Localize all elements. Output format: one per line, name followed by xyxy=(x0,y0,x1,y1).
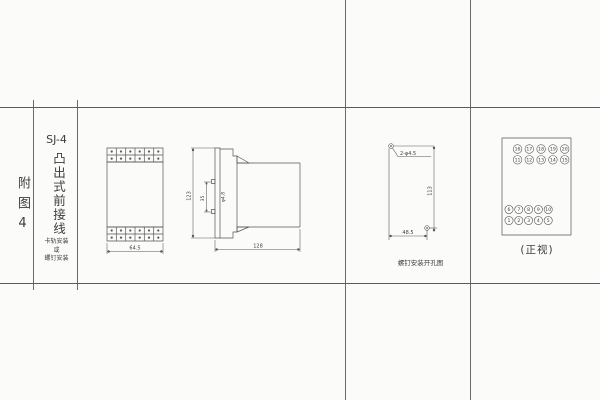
terminal-number: 7 xyxy=(517,207,520,213)
figure-label: 附图4 xyxy=(13,176,32,238)
terminal-number: 10 xyxy=(545,207,551,213)
mounting-subtitle-line: 螺钉安装 xyxy=(35,255,78,264)
terminal-number: 9 xyxy=(537,207,540,213)
terminal-number: 3 xyxy=(527,218,530,224)
front-view-width-dim-label: 64.5 xyxy=(129,246,140,252)
drill-plan-holes-label: 2-φ4.5 xyxy=(400,151,416,157)
scanned-manual-page: 64.5 123 xyxy=(0,0,600,400)
terminal-number: 5 xyxy=(547,218,550,224)
side-view-depth-dim-label: 128 xyxy=(253,244,263,250)
side-view-inner-dim-b-label: φ4.8 xyxy=(221,192,227,202)
drill-plan-vertical-dim-label: 113 xyxy=(428,186,434,196)
front-view-drawing: 64.5 xyxy=(107,148,163,254)
terminal-number: 6 xyxy=(508,207,511,213)
terminal-number: 19 xyxy=(550,147,556,153)
terminal-number: 1 xyxy=(508,218,511,224)
vertical-title: 凸出式前接线 xyxy=(49,152,68,236)
terminal-numbers-top: 16 17 18 19 20 11 12 13 14 15 xyxy=(515,147,568,164)
drill-plan-drawing: 2-φ4.5 113 48.5 xyxy=(389,144,437,240)
terminal-number: 20 xyxy=(562,147,568,153)
mounting-subtitle-line: 或 xyxy=(35,247,78,256)
terminal-number: 11 xyxy=(515,158,521,164)
terminal-number: 4 xyxy=(537,218,540,224)
terminal-layout-drawing: 16 17 18 19 20 11 12 13 14 15 6 7 8 9 10 xyxy=(502,138,571,235)
terminal-number: 12 xyxy=(526,158,532,164)
terminal-number: 15 xyxy=(562,158,568,164)
terminal-number: 18 xyxy=(538,147,544,153)
drill-plan-caption: 螺钉安装开孔图 xyxy=(383,257,458,267)
side-view-height-dim-label: 123 xyxy=(187,191,193,201)
terminal-number: 14 xyxy=(550,158,556,164)
terminal-number: 16 xyxy=(515,147,521,153)
side-view-height-dimension xyxy=(191,148,215,238)
terminal-number: 2 xyxy=(517,218,520,224)
mounting-subtitle-line: 卡轨安装 xyxy=(35,238,78,247)
drill-plan-horizontal-dim-label: 48.5 xyxy=(402,230,413,236)
terminal-number: 8 xyxy=(527,207,530,213)
terminal-view-caption: (正视) xyxy=(506,242,568,257)
side-view-inner-dim-a-label: 35 xyxy=(200,196,206,202)
technical-drawing: 64.5 123 xyxy=(0,0,600,400)
terminal-number: 17 xyxy=(526,147,532,153)
mounting-subtitle: 卡轨安装 或 螺钉安装 xyxy=(35,238,78,264)
terminal-number: 13 xyxy=(538,158,544,164)
terminal-numbers-bottom: 6 7 8 9 10 1 2 3 4 5 xyxy=(508,207,552,224)
side-view-drawing: 123 35 φ4.8 128 xyxy=(187,148,301,252)
model-label: SJ-4 xyxy=(36,133,77,146)
